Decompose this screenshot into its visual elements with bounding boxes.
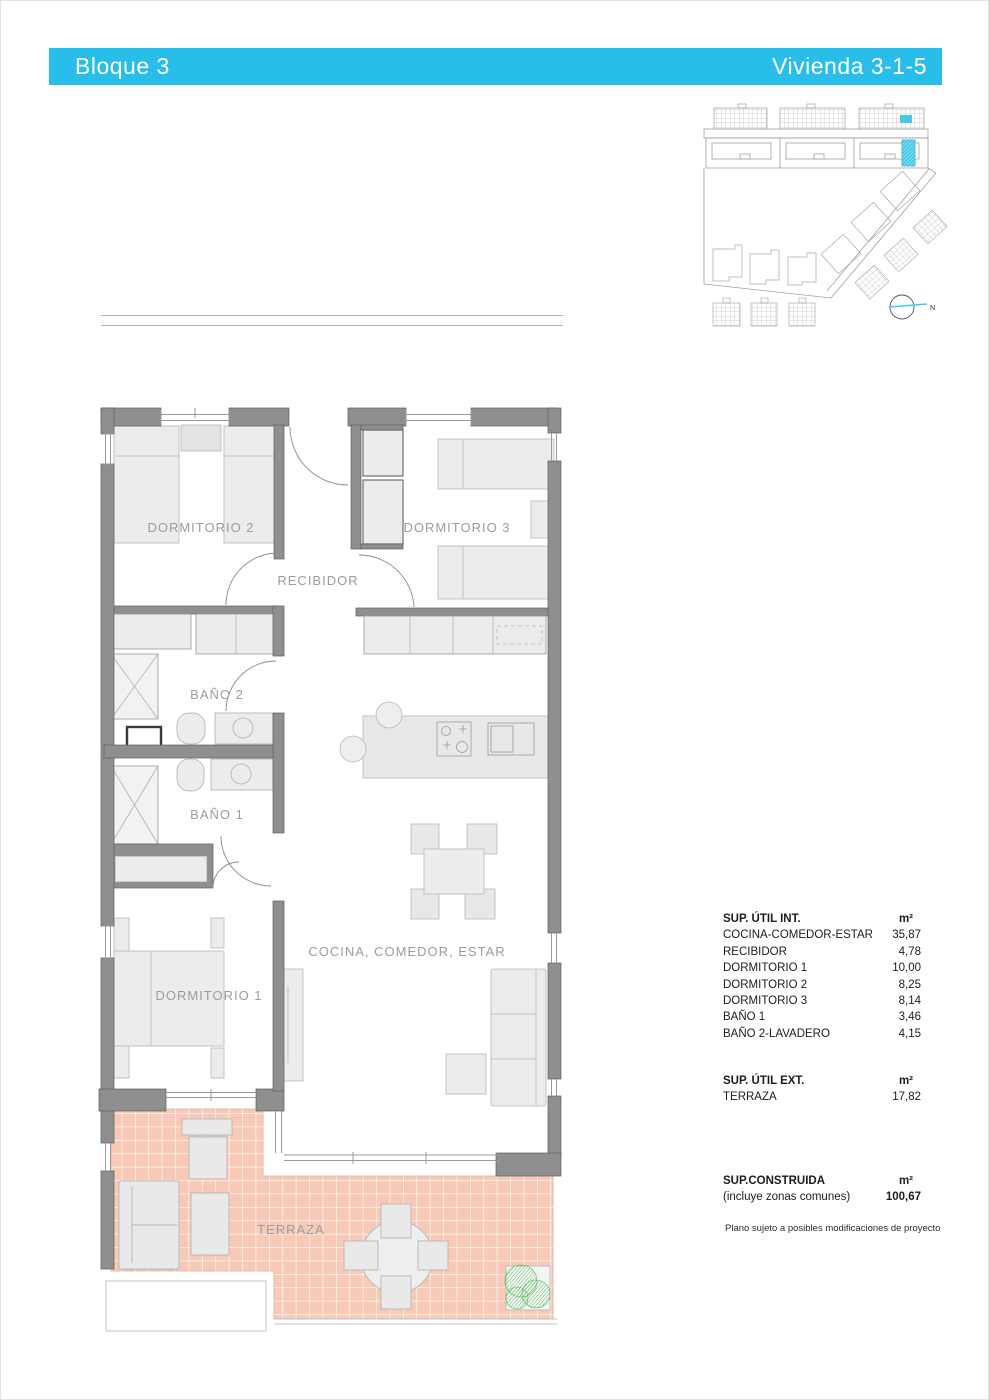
area-row: RECIBIDOR4,78	[723, 944, 921, 960]
area-table-interior-header: SUP. ÚTIL INT. m²	[723, 911, 921, 927]
label-dormitorio1: DORMITORIO 1	[155, 988, 262, 1003]
site-plan: N	[691, 101, 956, 336]
dormitorio3-furniture	[363, 430, 554, 599]
unit-header: m²	[899, 911, 921, 927]
area-value: 8,25	[899, 977, 921, 993]
area-label: BAÑO 1	[723, 1009, 765, 1025]
constructed-header: SUP.CONSTRUIDA m²	[723, 1173, 921, 1189]
dining-furniture	[411, 824, 497, 919]
area-table-exterior: SUP. ÚTIL EXT. m² TERRAZA17,82	[723, 1073, 921, 1106]
site-parking-grids-side	[713, 210, 947, 326]
unit-header: m²	[899, 1073, 921, 1089]
plant-icon	[505, 1265, 550, 1310]
area-row: DORMITORIO 28,25	[723, 977, 921, 993]
area-label: BAÑO 2-LAVADERO	[723, 1026, 830, 1042]
site-boundary	[704, 168, 936, 298]
floor-plan: DORMITORIO 2 DORMITORIO 3 RECIBIDOR BAÑO…	[96, 394, 566, 1334]
constructed-subtitle: (incluye zonas comunes)	[723, 1189, 850, 1205]
site-houses	[713, 171, 920, 285]
area-row: TERRAZA17,82	[723, 1089, 921, 1105]
title-bar: Bloque 3 Vivienda 3-1-5	[49, 48, 942, 85]
label-recibidor: RECIBIDOR	[277, 573, 358, 588]
area-row: COCINA-COMEDOR-ESTAR35,87	[723, 927, 921, 943]
unit-header: m²	[899, 1173, 921, 1189]
area-row: BAÑO 2-LAVADERO4,15	[723, 1026, 921, 1042]
label-bano2: BAÑO 2	[190, 687, 244, 702]
constructed-title: SUP.CONSTRUIDA	[723, 1173, 825, 1189]
area-value: 10,00	[892, 960, 921, 976]
reference-line-top	[101, 315, 563, 316]
disclaimer-note: Plano sujeto a posibles modificaciones d…	[725, 1223, 940, 1234]
area-row: DORMITORIO 38,14	[723, 993, 921, 1009]
area-table-exterior-header: SUP. ÚTIL EXT. m²	[723, 1073, 921, 1089]
north-arrow-icon	[889, 304, 927, 307]
area-value: 4,15	[899, 1026, 921, 1042]
area-value: 17,82	[892, 1089, 921, 1105]
entrance-door-arc	[290, 427, 348, 485]
site-building-row	[704, 129, 928, 168]
area-label: DORMITORIO 2	[723, 977, 807, 993]
label-terraza: TERRAZA	[257, 1222, 325, 1237]
area-value: 4,78	[899, 944, 921, 960]
constructed-area-block: SUP.CONSTRUIDA m² (incluye zonas comunes…	[723, 1173, 921, 1206]
label-dormitorio3: DORMITORIO 3	[403, 520, 510, 535]
area-label: DORMITORIO 1	[723, 960, 807, 976]
unit-title: Vivienda 3-1-5	[772, 53, 927, 80]
site-parking-grids-top	[714, 104, 924, 129]
reference-line-bottom	[101, 325, 563, 326]
label-dormitorio2: DORMITORIO 2	[147, 520, 254, 535]
label-bano1: BAÑO 1	[190, 807, 244, 822]
area-value: 8,14	[899, 993, 921, 1009]
area-value: 35,87	[892, 927, 921, 943]
area-label: DORMITORIO 3	[723, 993, 807, 1009]
living-furniture	[282, 969, 546, 1106]
constructed-value: 100,67	[886, 1189, 921, 1205]
kitchen-furniture	[340, 702, 549, 778]
area-row: DORMITORIO 110,00	[723, 960, 921, 976]
constructed-row: (incluye zonas comunes) 100,67	[723, 1189, 921, 1205]
area-table-interior: SUP. ÚTIL INT. m² COCINA-COMEDOR-ESTAR35…	[723, 911, 921, 1042]
area-table-title: SUP. ÚTIL INT.	[723, 911, 801, 927]
area-row: BAÑO 13,46	[723, 1009, 921, 1025]
site-highlight-parking	[900, 115, 912, 123]
plan-sheet: Bloque 3 Vivienda 3-1-5	[0, 0, 989, 1400]
area-table-title: SUP. ÚTIL EXT.	[723, 1073, 804, 1089]
label-cocina: COCINA, COMEDOR, ESTAR	[308, 944, 505, 959]
north-label: N	[930, 305, 935, 312]
site-highlight-unit	[902, 140, 915, 166]
area-value: 3,46	[899, 1009, 921, 1025]
area-label: RECIBIDOR	[723, 944, 787, 960]
area-label: TERRAZA	[723, 1089, 777, 1105]
north-indicator: N	[889, 295, 935, 319]
area-label: COCINA-COMEDOR-ESTAR	[723, 927, 873, 943]
block-title: Bloque 3	[75, 53, 170, 80]
